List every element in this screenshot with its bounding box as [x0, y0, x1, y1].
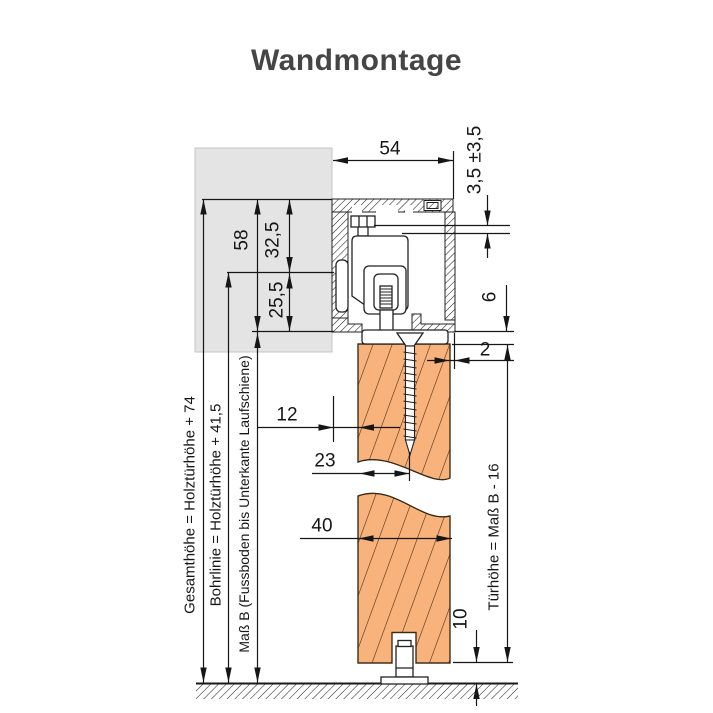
door-panel-upper — [358, 344, 450, 480]
label-gesamthoehe: Gesamthöhe = Holztürhöhe + 74 — [183, 396, 198, 614]
dim-floor-clearance: 10 — [452, 608, 471, 629]
dim-profile-height: 58 — [233, 229, 252, 250]
dim-track-width: 54 — [379, 140, 400, 159]
hanger-strap — [380, 310, 393, 331]
dim-height-adjustment: 3,5 ±3,5 — [466, 126, 485, 195]
dim-wall-door-clearance: 2 — [480, 341, 491, 360]
roller-plate — [336, 260, 348, 312]
dim-upper-section: 32,5 — [264, 222, 283, 259]
dim-track-door-gap: 6 — [481, 292, 500, 303]
technical-drawing-canvas — [0, 0, 713, 713]
label-mass-b: Maß B (Fussboden bis Unterkante Laufschi… — [237, 355, 251, 652]
dim-door-thickness: 40 — [311, 517, 332, 536]
label-tuerhoehe: Türhöhe = Maß B - 16 — [487, 463, 502, 610]
door-panel-lower — [358, 493, 450, 663]
wall-mounting-diagram: Wandmontage — [0, 0, 713, 713]
floor-hatching — [196, 684, 518, 700]
bolt-hex-head — [351, 216, 375, 227]
dim-lower-section: 25,5 — [268, 282, 287, 319]
dim-wall-to-door-face: 12 — [276, 406, 297, 425]
dim-door-face-to-screw: 23 — [314, 452, 335, 471]
label-bohrlinie: Bohrlinie = Holztürhöhe + 41,5 — [209, 404, 224, 607]
wood-screw — [404, 346, 417, 455]
